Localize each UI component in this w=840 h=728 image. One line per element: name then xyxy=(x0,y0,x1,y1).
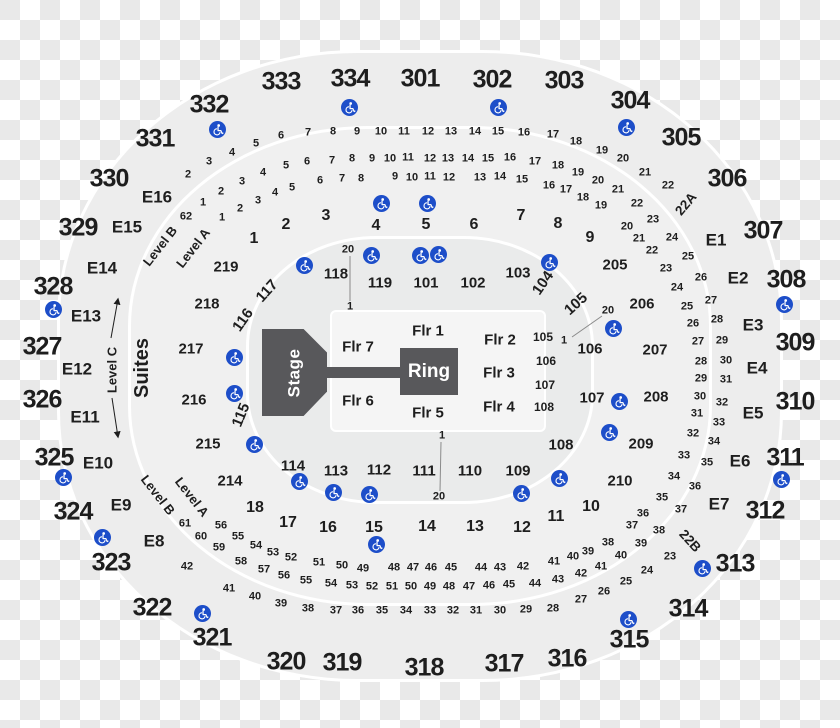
row-number-16: 16 xyxy=(518,128,530,139)
bowl-section-11[interactable]: 11 xyxy=(548,509,565,525)
row-number-8: 8 xyxy=(349,154,355,165)
row-number-14: 14 xyxy=(494,172,506,183)
row-number-26: 26 xyxy=(598,587,610,598)
bowl-section-4[interactable]: 4 xyxy=(372,218,381,234)
floor-col-105: 105 xyxy=(533,331,553,343)
section-106[interactable]: 106 xyxy=(577,342,602,357)
section-317[interactable]: 317 xyxy=(485,652,524,677)
bowl-section-5[interactable]: 5 xyxy=(422,217,431,233)
suite-section-e15[interactable]: E15 xyxy=(112,219,142,236)
accessible-seating-icon[interactable] xyxy=(226,349,243,366)
section-332[interactable]: 332 xyxy=(190,93,229,118)
level-label-level-c: Level C xyxy=(106,347,119,393)
bowl-section-1[interactable]: 1 xyxy=(250,231,259,247)
row-number-35: 35 xyxy=(656,493,668,504)
section-216[interactable]: 216 xyxy=(181,393,206,408)
accessible-seating-icon[interactable] xyxy=(490,99,507,116)
accessible-seating-icon[interactable] xyxy=(373,195,390,212)
row-number-59: 59 xyxy=(213,543,225,554)
row-number-51: 51 xyxy=(386,582,398,593)
section-322[interactable]: 322 xyxy=(133,596,172,621)
section-312[interactable]: 312 xyxy=(746,499,785,524)
section-210[interactable]: 210 xyxy=(607,474,632,489)
section-329[interactable]: 329 xyxy=(59,216,98,241)
row-number-53: 53 xyxy=(267,548,279,559)
row-number-28: 28 xyxy=(547,604,559,615)
row-number-24: 24 xyxy=(671,283,683,294)
row-range-label-1: 1 xyxy=(561,336,567,347)
suite-section-e8[interactable]: E8 xyxy=(144,533,165,550)
row-number-10: 10 xyxy=(406,173,418,184)
accessible-seating-icon[interactable] xyxy=(620,611,637,628)
row-number-17: 17 xyxy=(560,185,572,196)
row-number-44: 44 xyxy=(529,579,541,590)
row-number-13: 13 xyxy=(442,154,454,165)
suite-section-e1[interactable]: E1 xyxy=(706,232,727,249)
suite-section-e7[interactable]: E7 xyxy=(709,496,730,513)
row-number-39: 39 xyxy=(275,599,287,610)
row-number-47: 47 xyxy=(463,582,475,593)
row-number-1: 1 xyxy=(200,198,206,209)
row-number-14: 14 xyxy=(462,154,474,165)
bowl-section-13[interactable]: 13 xyxy=(466,519,484,535)
section-304[interactable]: 304 xyxy=(611,89,650,114)
bowl-section-9[interactable]: 9 xyxy=(586,230,595,246)
row-number-18: 18 xyxy=(552,161,564,172)
row-number-38: 38 xyxy=(602,538,614,549)
section-118[interactable]: 118 xyxy=(324,267,348,282)
row-number-23: 23 xyxy=(664,552,676,563)
row-number-3: 3 xyxy=(206,157,212,168)
row-number-54: 54 xyxy=(250,541,262,552)
floor-section-flr-4[interactable]: Flr 4 xyxy=(483,400,515,415)
row-range-label-1: 1 xyxy=(347,302,353,313)
row-number-13: 13 xyxy=(445,127,457,138)
row-number-34: 34 xyxy=(400,606,412,617)
floor-section-flr-6[interactable]: Flr 6 xyxy=(342,394,374,409)
accessible-seating-icon[interactable] xyxy=(94,529,111,546)
accessible-seating-icon[interactable] xyxy=(412,247,429,264)
row-number-38: 38 xyxy=(653,526,665,537)
row-number-41: 41 xyxy=(223,584,235,595)
row-number-16: 16 xyxy=(504,153,516,164)
row-range-label-20: 20 xyxy=(602,306,614,317)
row-number-46: 46 xyxy=(483,581,495,592)
section-108[interactable]: 108 xyxy=(548,438,573,453)
row-number-41: 41 xyxy=(548,557,560,568)
section-207[interactable]: 207 xyxy=(642,343,667,358)
accessible-seating-icon[interactable] xyxy=(551,470,568,487)
suite-section-e12[interactable]: E12 xyxy=(62,361,92,378)
row-number-17: 17 xyxy=(547,130,559,141)
bowl-section-16[interactable]: 16 xyxy=(319,520,337,536)
row-number-10: 10 xyxy=(375,127,387,138)
row-number-30: 30 xyxy=(494,606,506,617)
section-206[interactable]: 206 xyxy=(629,297,654,312)
suite-section-e14[interactable]: E14 xyxy=(87,260,117,277)
section-208[interactable]: 208 xyxy=(643,390,668,405)
suite-section-e4[interactable]: E4 xyxy=(747,360,768,377)
section-325[interactable]: 325 xyxy=(35,446,74,471)
section-313[interactable]: 313 xyxy=(716,552,755,577)
section-103[interactable]: 103 xyxy=(505,266,530,281)
row-number-32: 32 xyxy=(687,429,699,440)
row-number-27: 27 xyxy=(575,595,587,606)
row-number-28: 28 xyxy=(695,357,707,368)
row-number-15: 15 xyxy=(482,154,494,165)
row-number-40: 40 xyxy=(615,551,627,562)
row-number-30: 30 xyxy=(694,392,706,403)
row-number-32: 32 xyxy=(447,606,459,617)
accessible-seating-icon[interactable] xyxy=(291,473,308,490)
accessible-seating-icon[interactable] xyxy=(296,257,313,274)
suite-section-e10[interactable]: E10 xyxy=(83,455,113,472)
section-109[interactable]: 109 xyxy=(505,464,530,479)
row-number-36: 36 xyxy=(352,606,364,617)
row-number-17: 17 xyxy=(529,157,541,168)
row-number-34: 34 xyxy=(668,472,680,483)
section-209[interactable]: 209 xyxy=(628,437,653,452)
row-number-47: 47 xyxy=(407,563,419,574)
row-number-34: 34 xyxy=(708,437,720,448)
row-number-42: 42 xyxy=(517,562,529,573)
suite-section-e11[interactable]: E11 xyxy=(70,409,99,426)
row-number-58: 58 xyxy=(235,557,247,568)
row-number-21: 21 xyxy=(612,185,624,196)
row-number-26: 26 xyxy=(687,319,699,330)
section-102[interactable]: 102 xyxy=(460,276,485,291)
row-number-4: 4 xyxy=(272,188,278,199)
floor-section-flr-5[interactable]: Flr 5 xyxy=(412,406,444,421)
accessible-seating-icon[interactable] xyxy=(368,536,385,553)
section-119[interactable]: 119 xyxy=(368,276,392,291)
row-number-23: 23 xyxy=(660,264,672,275)
row-number-52: 52 xyxy=(285,553,297,564)
row-range-label-1: 1 xyxy=(439,431,445,442)
row-number-23: 23 xyxy=(647,215,659,226)
row-number-4: 4 xyxy=(229,148,235,159)
section-215[interactable]: 215 xyxy=(195,437,220,452)
section-305[interactable]: 305 xyxy=(662,126,701,151)
floor-section-flr-1[interactable]: Flr 1 xyxy=(412,324,444,339)
row-number-24: 24 xyxy=(666,233,678,244)
row-number-57: 57 xyxy=(258,565,270,576)
row-number-40: 40 xyxy=(249,592,261,603)
row-number-8: 8 xyxy=(358,174,364,185)
section-316[interactable]: 316 xyxy=(548,647,587,672)
bowl-section-3[interactable]: 3 xyxy=(322,208,331,224)
bowl-section-6[interactable]: 6 xyxy=(470,217,479,233)
section-205[interactable]: 205 xyxy=(602,258,627,273)
suite-section-e3[interactable]: E3 xyxy=(743,317,764,334)
section-214[interactable]: 214 xyxy=(217,474,242,489)
row-number-27: 27 xyxy=(705,296,717,307)
row-number-29: 29 xyxy=(716,336,728,347)
accessible-seating-icon[interactable] xyxy=(194,605,211,622)
row-number-42: 42 xyxy=(575,569,587,580)
floor-col-107: 107 xyxy=(535,379,555,391)
floor-col-108: 108 xyxy=(534,401,554,413)
row-number-22: 22 xyxy=(662,181,674,192)
row-number-43: 43 xyxy=(494,563,506,574)
row-number-6: 6 xyxy=(304,157,310,168)
row-number-56: 56 xyxy=(278,571,290,582)
wrestling-ring: Ring xyxy=(400,348,458,395)
section-110[interactable]: 110 xyxy=(458,464,482,479)
accessible-seating-icon[interactable] xyxy=(601,424,618,441)
accessible-seating-icon[interactable] xyxy=(341,99,358,116)
accessible-seating-icon[interactable] xyxy=(246,436,263,453)
row-number-50: 50 xyxy=(336,561,348,572)
row-number-22: 22 xyxy=(646,246,658,257)
row-number-10: 10 xyxy=(384,154,396,165)
section-315[interactable]: 315 xyxy=(610,628,649,653)
row-number-12: 12 xyxy=(424,154,436,165)
section-330[interactable]: 330 xyxy=(90,167,129,192)
section-219[interactable]: 219 xyxy=(213,260,238,275)
bowl-section-15[interactable]: 15 xyxy=(365,520,383,536)
row-number-9: 9 xyxy=(369,154,375,165)
section-328[interactable]: 328 xyxy=(34,275,73,300)
section-319[interactable]: 319 xyxy=(323,651,362,676)
bowl-section-12[interactable]: 12 xyxy=(513,520,531,536)
section-303[interactable]: 303 xyxy=(545,69,584,94)
accessible-seating-icon[interactable] xyxy=(605,320,622,337)
row-number-31: 31 xyxy=(720,375,732,386)
bowl-section-10[interactable]: 10 xyxy=(582,499,600,515)
row-range-label-20: 20 xyxy=(433,492,445,503)
bowl-section-18[interactable]: 18 xyxy=(246,500,264,516)
accessible-seating-icon[interactable] xyxy=(773,471,790,488)
section-306[interactable]: 306 xyxy=(708,167,747,192)
floor-section-flr-2[interactable]: Flr 2 xyxy=(484,333,516,348)
accessible-seating-icon[interactable] xyxy=(325,484,342,501)
row-number-54: 54 xyxy=(325,579,337,590)
section-113[interactable]: 113 xyxy=(324,464,348,479)
row-number-9: 9 xyxy=(354,127,360,138)
section-323[interactable]: 323 xyxy=(92,551,131,576)
bowl-section-8[interactable]: 8 xyxy=(554,216,563,232)
accessible-seating-icon[interactable] xyxy=(541,254,558,271)
section-318[interactable]: 318 xyxy=(405,656,444,681)
stage-runway xyxy=(326,367,402,378)
row-number-7: 7 xyxy=(305,128,311,139)
row-number-2: 2 xyxy=(185,170,191,181)
stage-label: Stage xyxy=(284,348,304,397)
row-number-37: 37 xyxy=(675,505,687,516)
suite-section-e5[interactable]: E5 xyxy=(743,405,764,422)
row-number-36: 36 xyxy=(689,482,701,493)
row-number-19: 19 xyxy=(595,201,607,212)
bowl-section-17[interactable]: 17 xyxy=(279,515,297,531)
row-number-43: 43 xyxy=(552,575,564,586)
row-number-39: 39 xyxy=(582,547,594,558)
accessible-seating-icon[interactable] xyxy=(55,469,72,486)
row-number-5: 5 xyxy=(253,139,259,150)
section-302[interactable]: 302 xyxy=(473,68,512,93)
row-number-45: 45 xyxy=(503,580,515,591)
row-number-49: 49 xyxy=(357,564,369,575)
row-number-25: 25 xyxy=(682,252,694,263)
row-number-3: 3 xyxy=(255,196,261,207)
row-number-29: 29 xyxy=(520,605,532,616)
row-number-18: 18 xyxy=(570,137,582,148)
row-number-33: 33 xyxy=(424,606,436,617)
row-number-44: 44 xyxy=(475,563,487,574)
row-number-51: 51 xyxy=(313,558,325,569)
row-number-2: 2 xyxy=(218,187,224,198)
section-321[interactable]: 321 xyxy=(193,626,232,651)
accessible-seating-icon[interactable] xyxy=(209,121,226,138)
row-number-8: 8 xyxy=(330,127,336,138)
row-number-1: 1 xyxy=(219,213,225,224)
section-310[interactable]: 310 xyxy=(776,390,815,415)
row-number-2: 2 xyxy=(237,204,243,215)
row-number-29: 29 xyxy=(695,374,707,385)
row-number-15: 15 xyxy=(492,127,504,138)
row-number-40: 40 xyxy=(567,552,579,563)
row-number-42: 42 xyxy=(181,562,193,573)
section-311[interactable]: 311 xyxy=(766,446,803,471)
section-307[interactable]: 307 xyxy=(744,219,783,244)
row-number-4: 4 xyxy=(260,168,266,179)
row-number-22: 22 xyxy=(631,199,643,210)
section-320[interactable]: 320 xyxy=(267,650,306,675)
arena-seating-map: Stage Ring 30130230330430530630730830931… xyxy=(0,0,840,728)
section-326[interactable]: 326 xyxy=(23,388,62,413)
row-number-11: 11 xyxy=(402,153,414,164)
row-number-52: 52 xyxy=(366,582,378,593)
row-number-19: 19 xyxy=(572,168,584,179)
suite-section-e13[interactable]: E13 xyxy=(71,308,101,325)
accessible-seating-icon[interactable] xyxy=(226,385,243,402)
row-number-3: 3 xyxy=(239,177,245,188)
row-number-37: 37 xyxy=(330,606,342,617)
suite-section-e2[interactable]: E2 xyxy=(728,270,749,287)
suites-label-suites: Suites xyxy=(132,338,152,398)
row-number-61: 61 xyxy=(179,519,191,530)
section-324[interactable]: 324 xyxy=(54,500,93,525)
section-112[interactable]: 112 xyxy=(367,463,391,478)
row-number-39: 39 xyxy=(635,539,647,550)
row-number-41: 41 xyxy=(595,562,607,573)
row-number-60: 60 xyxy=(195,532,207,543)
bowl-section-7[interactable]: 7 xyxy=(517,208,526,224)
row-number-35: 35 xyxy=(376,606,388,617)
section-111[interactable]: 111 xyxy=(412,464,435,479)
floor-section-flr-3[interactable]: Flr 3 xyxy=(483,366,515,381)
row-number-25: 25 xyxy=(620,577,632,588)
row-number-7: 7 xyxy=(339,174,345,185)
section-327[interactable]: 327 xyxy=(23,335,62,360)
row-number-25: 25 xyxy=(681,302,693,313)
section-101[interactable]: 101 xyxy=(413,276,438,291)
row-number-20: 20 xyxy=(617,154,629,165)
row-number-20: 20 xyxy=(621,222,633,233)
accessible-seating-icon[interactable] xyxy=(611,393,628,410)
suite-section-e9[interactable]: E9 xyxy=(111,497,132,514)
row-number-20: 20 xyxy=(592,176,604,187)
row-number-21: 21 xyxy=(633,234,645,245)
section-218[interactable]: 218 xyxy=(194,297,219,312)
row-number-13: 13 xyxy=(474,173,486,184)
row-number-62: 62 xyxy=(180,212,192,223)
row-number-24: 24 xyxy=(641,566,653,577)
row-number-56: 56 xyxy=(215,521,227,532)
row-number-48: 48 xyxy=(388,563,400,574)
row-number-35: 35 xyxy=(701,458,713,469)
section-308[interactable]: 308 xyxy=(767,268,806,293)
row-number-7: 7 xyxy=(329,156,335,167)
row-number-19: 19 xyxy=(596,146,608,157)
row-number-11: 11 xyxy=(398,127,410,138)
row-number-33: 33 xyxy=(713,418,725,429)
row-number-45: 45 xyxy=(445,563,457,574)
accessible-seating-icon[interactable] xyxy=(430,246,447,263)
suite-section-e6[interactable]: E6 xyxy=(730,453,751,470)
section-301[interactable]: 301 xyxy=(401,67,440,92)
section-333[interactable]: 333 xyxy=(262,70,301,95)
row-number-27: 27 xyxy=(692,337,704,348)
row-number-12: 12 xyxy=(422,127,434,138)
row-number-55: 55 xyxy=(300,576,312,587)
section-217[interactable]: 217 xyxy=(178,342,203,357)
row-number-6: 6 xyxy=(278,131,284,142)
row-number-53: 53 xyxy=(346,581,358,592)
row-number-48: 48 xyxy=(443,582,455,593)
section-314[interactable]: 314 xyxy=(669,597,708,622)
row-number-32: 32 xyxy=(716,398,728,409)
row-number-6: 6 xyxy=(317,176,323,187)
row-number-31: 31 xyxy=(470,606,482,617)
accessible-seating-icon[interactable] xyxy=(776,296,793,313)
accessible-seating-icon[interactable] xyxy=(45,301,62,318)
bowl-section-14[interactable]: 14 xyxy=(418,519,436,535)
row-number-5: 5 xyxy=(283,161,289,172)
accessible-seating-icon[interactable] xyxy=(694,560,711,577)
suite-section-e16[interactable]: E16 xyxy=(142,189,172,206)
row-number-46: 46 xyxy=(425,563,437,574)
row-number-16: 16 xyxy=(543,181,555,192)
section-331[interactable]: 331 xyxy=(136,127,175,152)
section-334[interactable]: 334 xyxy=(331,67,370,92)
row-number-12: 12 xyxy=(443,173,455,184)
row-number-50: 50 xyxy=(405,582,417,593)
bowl-section-2[interactable]: 2 xyxy=(282,217,291,233)
row-range-label-20: 20 xyxy=(342,245,354,256)
row-number-31: 31 xyxy=(691,409,703,420)
row-number-11: 11 xyxy=(424,172,436,183)
accessible-seating-icon[interactable] xyxy=(618,119,635,136)
accessible-seating-icon[interactable] xyxy=(513,485,530,502)
row-number-28: 28 xyxy=(711,315,723,326)
row-number-36: 36 xyxy=(637,509,649,520)
accessible-seating-icon[interactable] xyxy=(361,486,378,503)
section-114[interactable]: 114 xyxy=(281,459,305,474)
row-number-5: 5 xyxy=(289,183,295,194)
section-107[interactable]: 107 xyxy=(579,391,604,406)
floor-section-flr-7[interactable]: Flr 7 xyxy=(342,340,374,355)
section-309[interactable]: 309 xyxy=(776,331,815,356)
row-number-55: 55 xyxy=(232,532,244,543)
row-number-37: 37 xyxy=(626,521,638,532)
row-number-18: 18 xyxy=(577,193,589,204)
row-number-38: 38 xyxy=(302,604,314,615)
floor-col-106: 106 xyxy=(536,355,556,367)
accessible-seating-icon[interactable] xyxy=(419,195,436,212)
row-number-33: 33 xyxy=(678,451,690,462)
accessible-seating-icon[interactable] xyxy=(363,247,380,264)
